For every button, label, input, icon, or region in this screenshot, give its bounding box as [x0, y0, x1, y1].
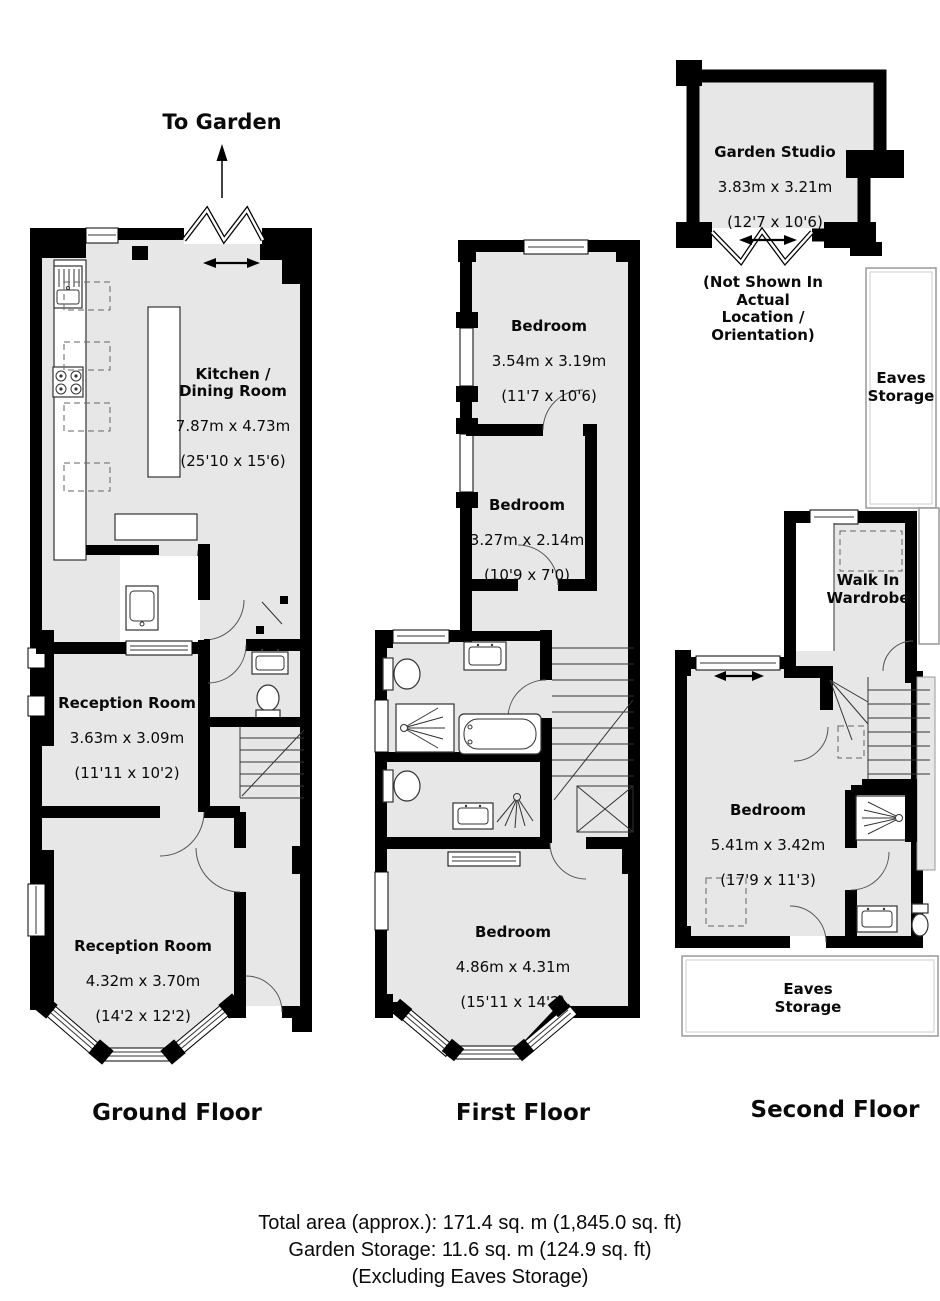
toilet-icon [383, 658, 420, 690]
floorplan-canvas: To Garden Kitchen / Dining Room 7.87m x … [0, 0, 940, 1301]
chimney-breast [292, 846, 308, 874]
floor-title-ground: Ground Floor [92, 1100, 262, 1126]
room-label-walk-in-wardrobe: Walk In Wardrobe [827, 572, 910, 607]
toilet-icon [383, 770, 420, 802]
room-label-bedroom-2: Bedroom 3.27m x 2.14m (10'9 x 7'0) [470, 479, 584, 602]
room-label-bedroom-second: Bedroom 5.41m x 3.42m (17'9 x 11'3) [711, 784, 825, 907]
hob-icon [53, 367, 83, 397]
room-label-reception-1: Reception Room 3.63m x 3.09m (11'11 x 10… [58, 677, 196, 800]
utility-sink-icon [126, 586, 158, 630]
bath-icon [459, 714, 541, 754]
basin-icon [453, 803, 493, 829]
toilet-icon [912, 904, 928, 936]
garden-studio-note: (Not Shown In Actual Location / Orientat… [675, 274, 852, 344]
garden-storage-line: Garden Storage: 11.6 sq. m (124.9 sq. ft… [0, 1237, 940, 1264]
basin-icon [464, 642, 506, 670]
sink-icon [54, 266, 82, 308]
total-area-line: Total area (approx.): 171.4 sq. m (1,845… [0, 1210, 940, 1237]
shower-icon [856, 796, 906, 840]
room-label-reception-2: Reception Room 4.32m x 3.70m (14'2 x 12'… [74, 920, 212, 1043]
shower-icon [396, 704, 454, 752]
radiator [448, 852, 520, 866]
sideboard [115, 514, 197, 540]
radiator [126, 641, 192, 655]
chimney-breast [622, 846, 638, 874]
room-label-bedroom-3: Bedroom 4.86m x 4.31m (15'11 x 14'2) [456, 906, 570, 1029]
to-garden-label: To Garden [162, 110, 281, 134]
room-label-garden-studio: Garden Studio 3.83m x 3.21m (12'7 x 10'6… [714, 126, 835, 249]
room-label-eaves-storage-bottom: Eaves Storage [775, 981, 842, 1016]
area-summary: Total area (approx.): 171.4 sq. m (1,845… [0, 1210, 940, 1291]
room-label-bedroom-1: Bedroom 3.54m x 3.19m (11'7 x 10'6) [492, 300, 606, 423]
wc-basin-icon [252, 649, 288, 674]
floor-title-first: First Floor [456, 1100, 590, 1126]
room-label-kitchen: Kitchen / Dining Room 7.87m x 4.73m (25'… [176, 348, 290, 488]
room-label-eaves-storage-top: Eaves Storage [868, 370, 935, 405]
toilet-icon [256, 685, 280, 719]
to-garden-arrow-icon [217, 144, 228, 198]
exclusion-line: (Excluding Eaves Storage) [0, 1264, 940, 1291]
floor-title-second: Second Floor [751, 1097, 920, 1123]
basin-icon [857, 906, 897, 932]
